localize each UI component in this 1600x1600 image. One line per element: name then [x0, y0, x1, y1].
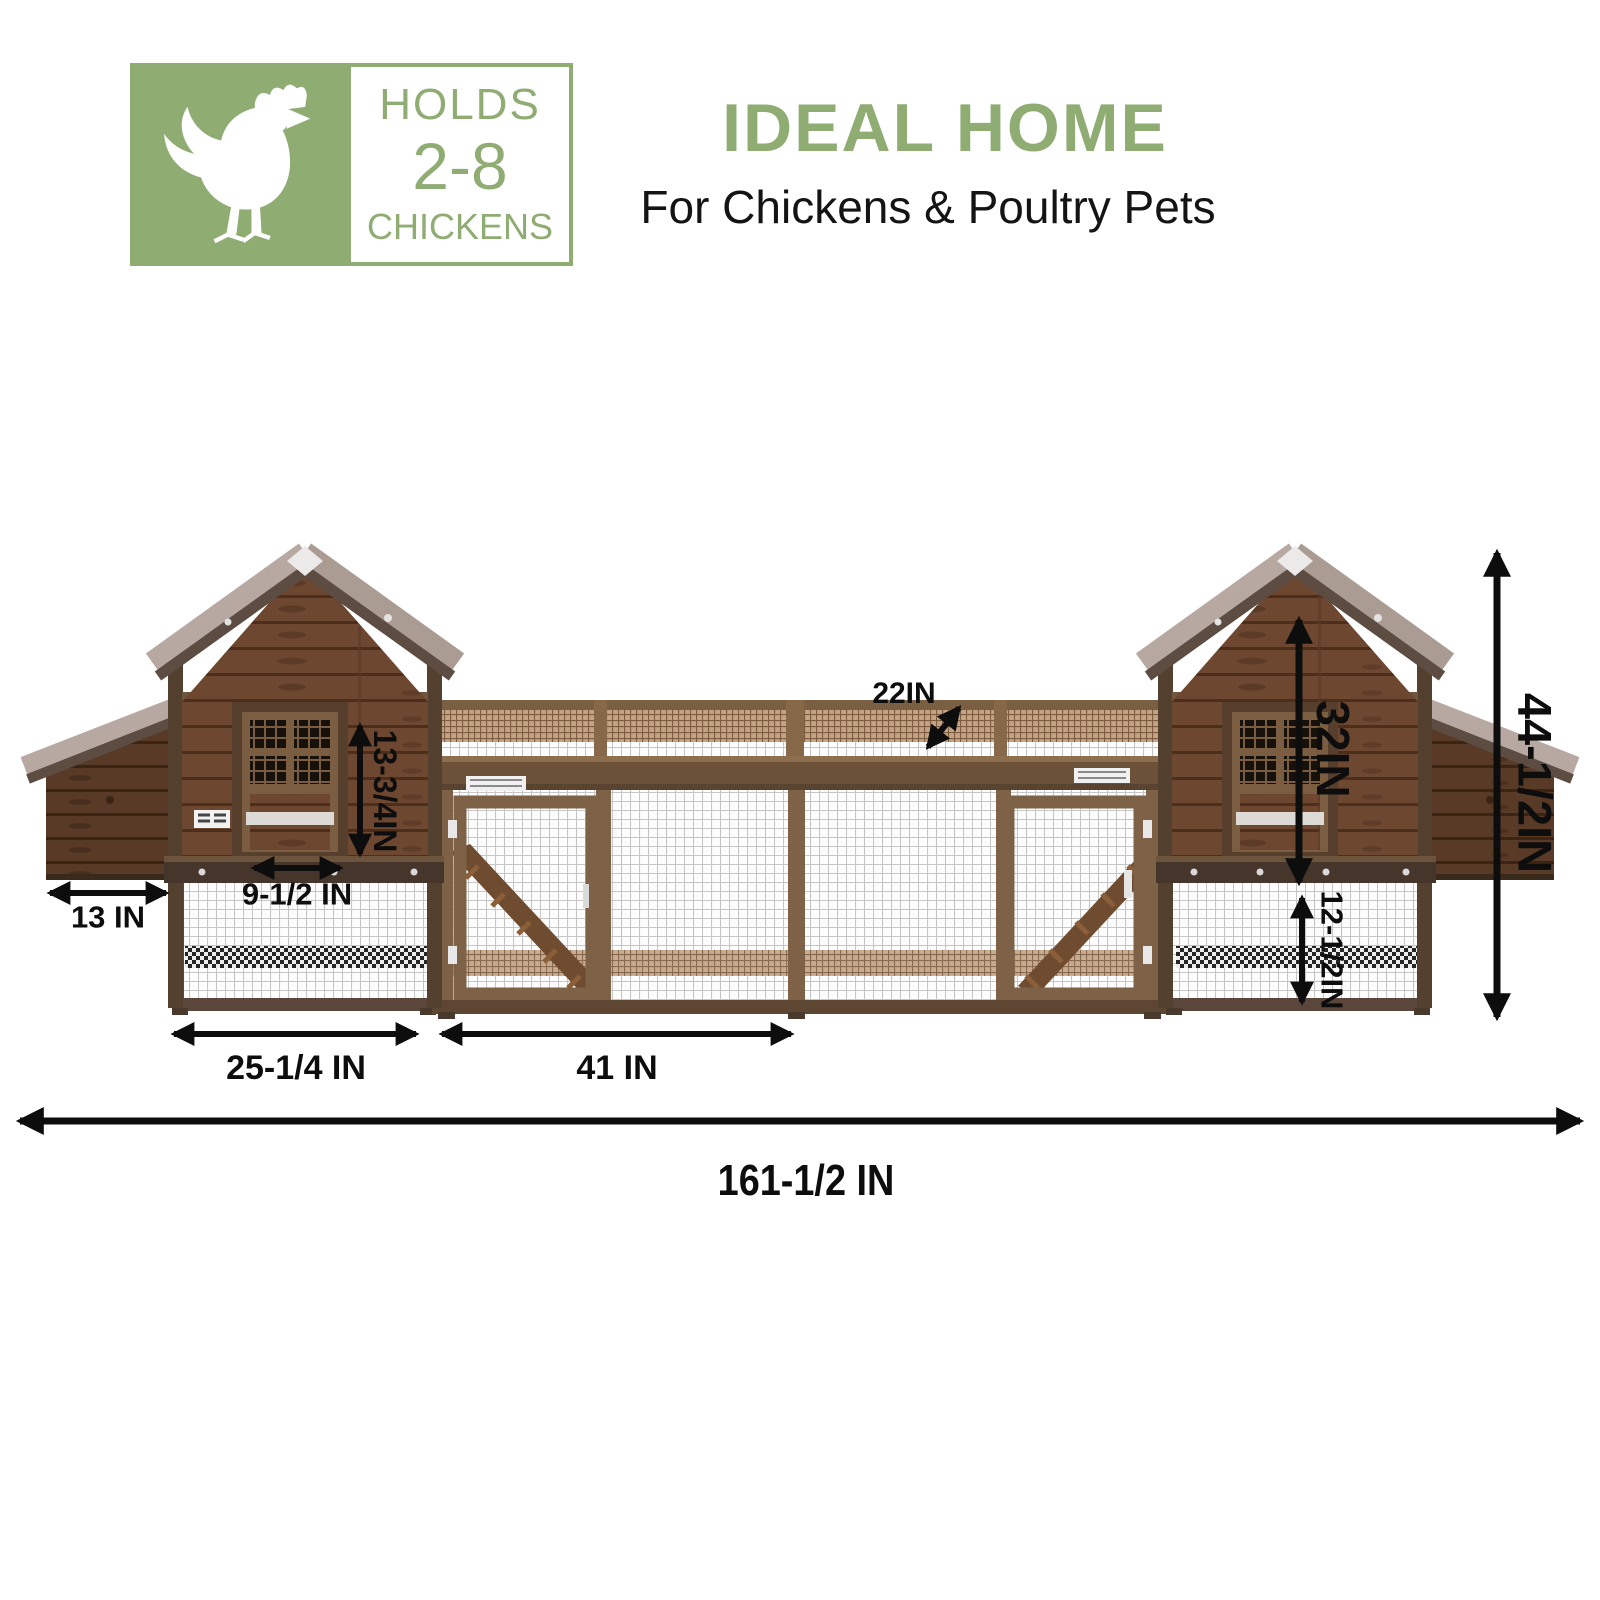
dim-label-center-run-width: 41 IN [576, 1051, 657, 1085]
right-lower-run [1166, 880, 1430, 1015]
left-house-window [232, 702, 348, 860]
page-subtitle: For Chickens & Poultry Pets [640, 180, 1215, 234]
dim-label-house-height: 32IN [1310, 700, 1356, 797]
page-title: IDEAL HOME [722, 89, 1168, 167]
dim-label-total-width: 161-1/2 IN [718, 1159, 895, 1203]
badge-holds-label: HOLDS [379, 81, 541, 129]
dim-label-window-width: 9-1/2 IN [242, 879, 352, 910]
chicken-icon [148, 80, 328, 248]
dim-label-window-height: 13-3/4IN [369, 730, 401, 853]
dim-label-left-section-width: 25-1/4 IN [226, 1051, 366, 1085]
badge-chickens-label: CHICKENS [367, 205, 553, 248]
dim-label-nest-box-depth: 13 IN [71, 902, 145, 933]
badge-capacity-value: 2-8 [412, 129, 507, 205]
dim-label-lower-run-height: 12-1/2IN [1317, 891, 1348, 1010]
capacity-badge-icon-panel [130, 63, 347, 266]
dim-label-run-top-width: 22IN [872, 679, 935, 709]
dim-label-total-height: 44-1/2IN [1512, 693, 1559, 873]
left-nest-box [24, 706, 180, 880]
capacity-badge-text-panel: HOLDS 2-8 CHICKENS [347, 63, 573, 266]
center-run [432, 700, 1170, 1019]
